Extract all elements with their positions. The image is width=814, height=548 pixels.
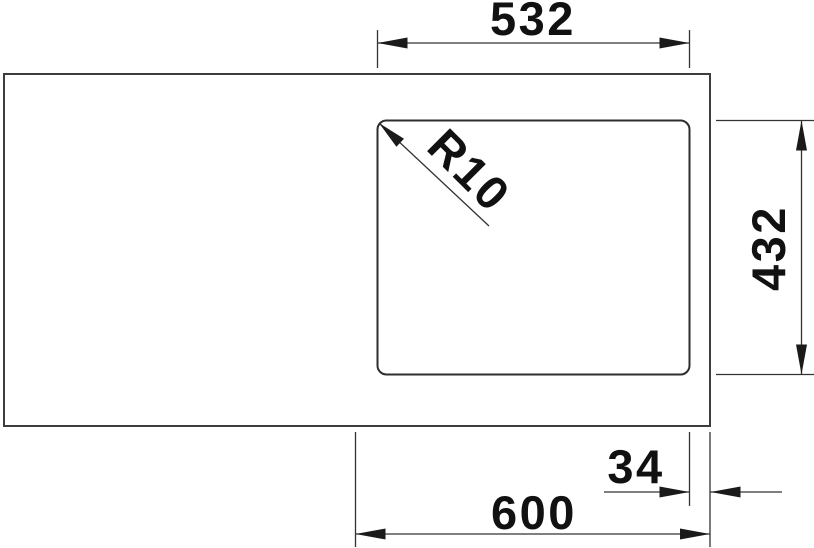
technical-drawing-canvas: 532 432 R10 34 (0, 0, 814, 548)
arrowhead-left-icon (356, 529, 386, 540)
arrowhead-right-icon (660, 38, 690, 49)
arrowhead-up-icon (796, 121, 807, 151)
dimension-label-rim-offset: 34 (607, 440, 664, 493)
sink-dimension-drawing: 532 432 R10 34 (0, 0, 814, 548)
dimension-bowl-width: 532 (378, 0, 690, 68)
arrowhead-left-icon (378, 38, 408, 49)
dimension-rim-offset: 34 (604, 432, 782, 506)
dimension-label-bowl-depth: 432 (742, 205, 795, 291)
dimension-bowl-depth: 432 (716, 121, 814, 375)
arrowhead-down-icon (796, 345, 807, 375)
dimension-label-bowl-width: 532 (490, 0, 576, 45)
arrowhead-right-icon (680, 529, 710, 540)
dimension-label-cabinet-width: 600 (491, 486, 577, 539)
arrowhead-left-icon (711, 487, 741, 498)
